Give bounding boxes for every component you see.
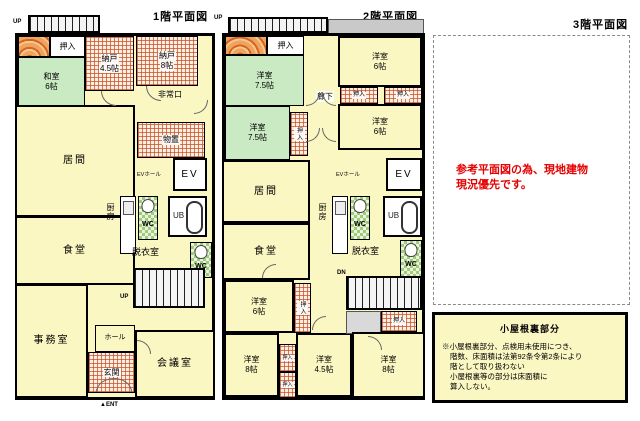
- floor1-emergency-exit-label: 非常口: [158, 89, 182, 100]
- attic-note-line2: 階数、床面積は法第92条令第2条により: [442, 352, 621, 362]
- bathtub-icon: [401, 201, 418, 234]
- floor1-storage-8: 納戸 8帖: [136, 36, 198, 86]
- floor2-closet-top: 押入: [267, 36, 304, 55]
- room-label: 洋室: [372, 52, 388, 62]
- floor2-toilet-b: WC: [400, 240, 422, 277]
- floor2-western-room-8-b: 洋室 8帖: [352, 332, 425, 398]
- floor3-title: 3階平面図: [573, 16, 628, 32]
- room-size: 8帖: [160, 61, 174, 71]
- floorplan-canvas: 1階平面図 UP 押入 和室 6帖 納戸 4.5帖 納戸 8帖 非常口 物置 居…: [0, 0, 640, 421]
- attic-note-box: 小屋根裏部分 ※小屋根裏部分、点検用未使用につき、 階数、床面積は法第92条令第…: [432, 312, 628, 403]
- room-label: 洋室: [381, 355, 397, 365]
- attic-title: 小屋根裏部分: [435, 322, 625, 335]
- floor2-elevator: EV: [386, 158, 422, 191]
- floor1-indoor-stairs-up-label: UP: [120, 294, 128, 300]
- floor2-closet-vertical-2: 押入: [294, 283, 311, 333]
- room-label: 食堂: [63, 245, 87, 257]
- toilet-icon: [354, 199, 367, 213]
- floor2-western-room-75-b: 洋室 7.5帖: [225, 106, 290, 160]
- room-label: 洋室: [257, 71, 273, 81]
- floor2-living-room: 居間: [222, 160, 310, 223]
- floor2-western-room-6-c: 洋室 6帖: [224, 280, 294, 333]
- floor2-tokonoma-decor: [225, 36, 267, 55]
- floor2-stairs-up-label: UP: [214, 15, 222, 21]
- floor1-stairs-up-label: UP: [13, 19, 21, 25]
- floor1-dining-room: 食堂: [15, 216, 135, 285]
- room-label: WC: [142, 221, 154, 228]
- room-label: UB: [388, 211, 399, 220]
- floor2-dressing-room-label: 脱衣室: [352, 244, 379, 257]
- floor1-closet: 押入: [50, 36, 85, 57]
- floor2-western-room-6-b: 洋室 6帖: [338, 104, 422, 150]
- room-label: WC: [354, 221, 366, 228]
- floor1-japanese-room-6: 和室 6帖: [18, 57, 85, 107]
- room-size: 6帖: [45, 82, 57, 92]
- room-label: 洋室: [250, 123, 266, 133]
- attic-note-line1: ※小屋根裏部分、点検用未使用につき、: [442, 342, 621, 352]
- floor2-western-room-6-a: 洋室 6帖: [338, 36, 422, 87]
- floor1-dressing-room-label: 脱衣室: [132, 245, 159, 258]
- attic-note-line3: 階として取り扱わない: [442, 362, 621, 372]
- floor2-closet-pair-right: 押入: [384, 87, 422, 104]
- room-label: 和室: [44, 72, 60, 82]
- room-label: 押入: [392, 318, 406, 325]
- room-label: EV: [395, 169, 412, 181]
- toilet-icon: [195, 245, 208, 259]
- room-size: 8帖: [245, 365, 257, 375]
- room-label: 居間: [254, 186, 278, 198]
- floor1-elevator: EV: [173, 158, 207, 191]
- attic-note: ※小屋根裏部分、点検用未使用につき、 階数、床面積は法第92条令第2条により 階…: [442, 342, 621, 392]
- floor1-bath: UB: [168, 196, 207, 237]
- floor2-kitchen-counter: [332, 196, 348, 254]
- floor1-living-room: 居間: [15, 105, 135, 217]
- room-size: 4.5帖: [99, 64, 120, 74]
- room-label: 納戸: [158, 51, 176, 61]
- floor2-toilet-a: WC: [350, 196, 370, 240]
- room-label: 押入: [281, 355, 293, 361]
- sink-icon: [335, 201, 346, 215]
- room-label: 納戸: [101, 54, 119, 64]
- floor2-roof-patch: [346, 311, 381, 334]
- floor2-western-room-8-a: 洋室 8帖: [224, 333, 279, 397]
- floor2-bath: UB: [383, 196, 422, 237]
- floor1-storage-4-5: 納戸 4.5帖: [85, 36, 134, 91]
- room-label: ホール: [105, 334, 126, 342]
- floor2-closet-bottom-right: 押入: [381, 311, 417, 332]
- toilet-icon: [142, 199, 155, 213]
- room-size: 6帖: [374, 127, 386, 137]
- floor1-meeting-room: 会議室: [135, 330, 215, 398]
- room-size: 6帖: [253, 307, 265, 317]
- room-size: 6帖: [374, 62, 386, 72]
- room-size: 4.5帖: [314, 365, 333, 375]
- room-label: 押入: [396, 92, 410, 99]
- floor3-red-disclaimer: 参考平面図の為、現地建物 現況優先です。: [456, 163, 588, 193]
- floor2-closet-small-1: 押入: [279, 344, 296, 372]
- room-label: 押入: [60, 42, 76, 52]
- floor1-kitchen-label: 厨房: [105, 203, 116, 221]
- sink-icon: [123, 201, 134, 215]
- room-label: 居間: [63, 155, 87, 167]
- floor2-ev-hall-label: EVホール: [336, 170, 360, 178]
- room-label: WC: [405, 261, 417, 268]
- room-label: 押入: [281, 382, 293, 388]
- room-label: 事務室: [34, 335, 70, 347]
- floor1-outdoor-stairs: [28, 15, 100, 33]
- attic-note-line5: 算入しない。: [442, 382, 621, 392]
- room-label: UB: [173, 211, 184, 220]
- floor2-stairs-dn-label: DN: [337, 270, 346, 276]
- red-disclaimer-line1: 参考平面図の為、現地建物: [456, 163, 588, 178]
- toilet-icon: [405, 243, 418, 257]
- room-label: 洋室: [244, 355, 260, 365]
- room-size: 7.5帖: [255, 81, 274, 91]
- floor2-closet-pair-left: 押入: [340, 87, 378, 104]
- floor1-entrance-marker: ▲ENT: [100, 402, 118, 408]
- floor1-title: 1階平面図: [153, 8, 208, 24]
- room-label: 物置: [162, 135, 180, 145]
- bathtub-icon: [186, 201, 203, 234]
- floor1-storeroom: 物置: [137, 122, 205, 158]
- floor2-outdoor-stairs: [228, 17, 328, 33]
- floor1-office: 事務室: [15, 284, 88, 398]
- room-size: 8帖: [382, 365, 394, 375]
- room-label: 押入: [297, 301, 308, 315]
- room-label: 押入: [352, 92, 366, 99]
- room-label: EV: [181, 169, 198, 181]
- room-label: 洋室: [316, 355, 332, 365]
- room-label: 押入: [278, 41, 294, 51]
- room-size: 7.5帖: [248, 133, 267, 143]
- room-label: 玄関: [103, 368, 121, 378]
- floor2-closet-small-2: 押入: [279, 372, 296, 398]
- room-label: 押入: [294, 127, 305, 141]
- floor1-tokonoma-decor: [18, 36, 50, 57]
- floor1-hall: ホール: [95, 325, 135, 352]
- room-label: 洋室: [251, 297, 267, 307]
- floor1-ev-hall-label: EVホール: [137, 170, 161, 178]
- floor2-western-room-45: 洋室 4.5帖: [296, 333, 352, 397]
- floor2-indoor-stairs: [346, 276, 422, 310]
- room-label: 洋室: [372, 117, 388, 127]
- attic-note-line4: 小屋根裏等の部分は床面積に: [442, 372, 621, 382]
- floor2-kitchen-label: 厨房: [317, 203, 328, 221]
- room-label: 会議室: [157, 358, 193, 370]
- floor1-indoor-stairs: [133, 268, 205, 308]
- red-disclaimer-line2: 現況優先です。: [456, 178, 588, 193]
- floor1-toilet-a: WC: [138, 196, 158, 240]
- room-label: 食堂: [254, 246, 278, 258]
- floor2-western-room-75-a: 洋室 7.5帖: [225, 55, 304, 106]
